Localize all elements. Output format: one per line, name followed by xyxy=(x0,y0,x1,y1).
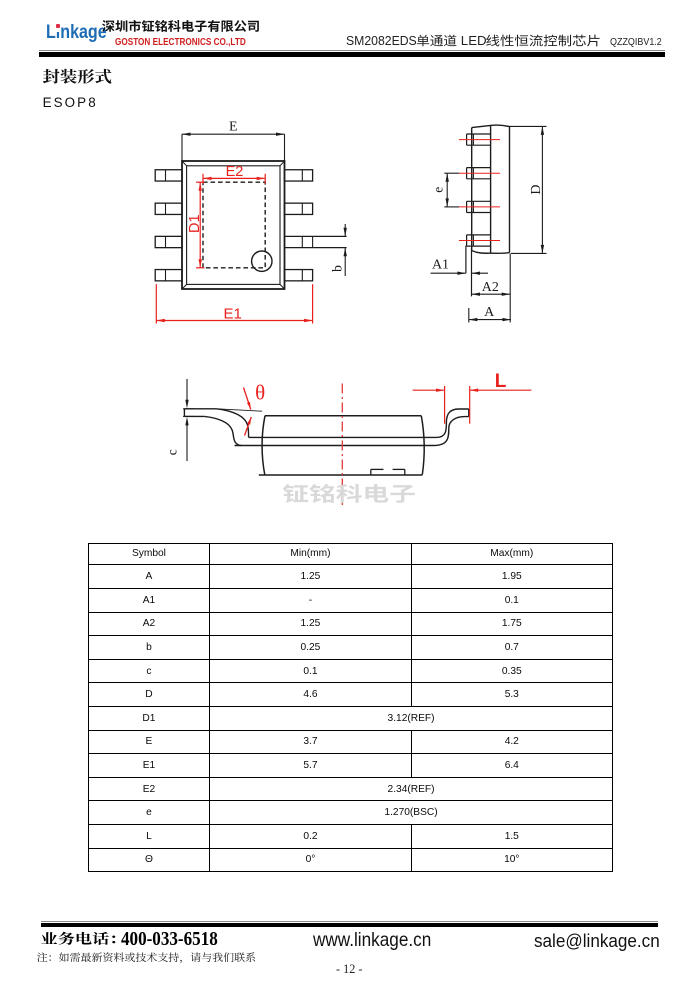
svg-text:e: e xyxy=(431,187,446,193)
svg-text:A1: A1 xyxy=(432,258,449,273)
svg-text:L: L xyxy=(495,371,507,392)
svg-text:b: b xyxy=(330,265,345,272)
svg-text:A2: A2 xyxy=(482,280,499,295)
svg-text:A: A xyxy=(484,305,495,320)
svg-text:E1: E1 xyxy=(224,306,242,323)
svg-text:c: c xyxy=(165,449,180,455)
svg-text:E: E xyxy=(229,120,238,135)
svg-text:E2: E2 xyxy=(226,164,244,180)
svg-text:D: D xyxy=(529,184,544,194)
svg-text:θ: θ xyxy=(255,381,265,405)
svg-text:D1: D1 xyxy=(187,214,203,233)
